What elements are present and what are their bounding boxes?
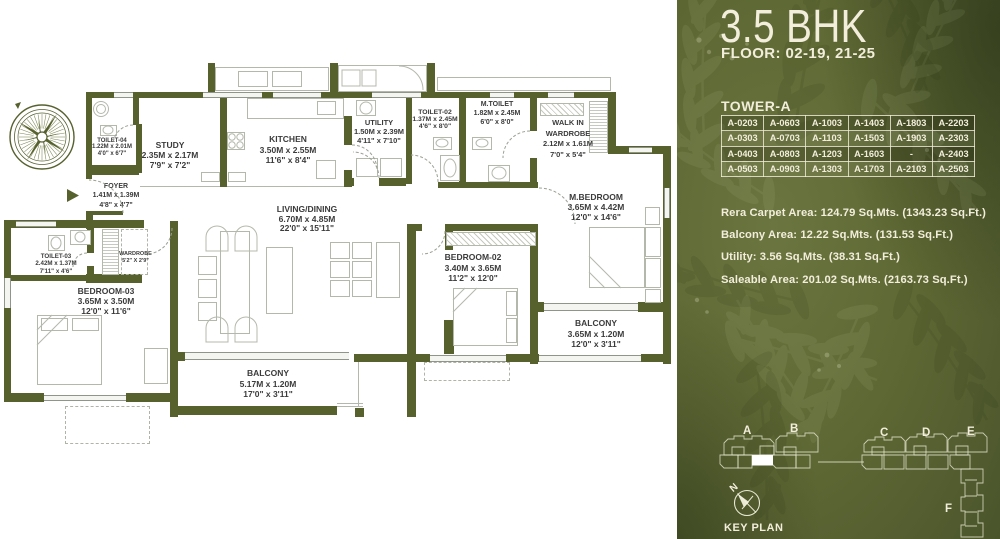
svg-text:F: F	[945, 503, 952, 515]
svg-text:KEY PLAN: KEY PLAN	[724, 522, 783, 534]
svg-text:C: C	[880, 427, 888, 439]
svg-text:D: D	[922, 427, 930, 439]
svg-text:E: E	[967, 426, 975, 438]
svg-text:A: A	[743, 425, 751, 437]
svg-text:N: N	[728, 482, 741, 495]
svg-text:B: B	[790, 423, 798, 435]
